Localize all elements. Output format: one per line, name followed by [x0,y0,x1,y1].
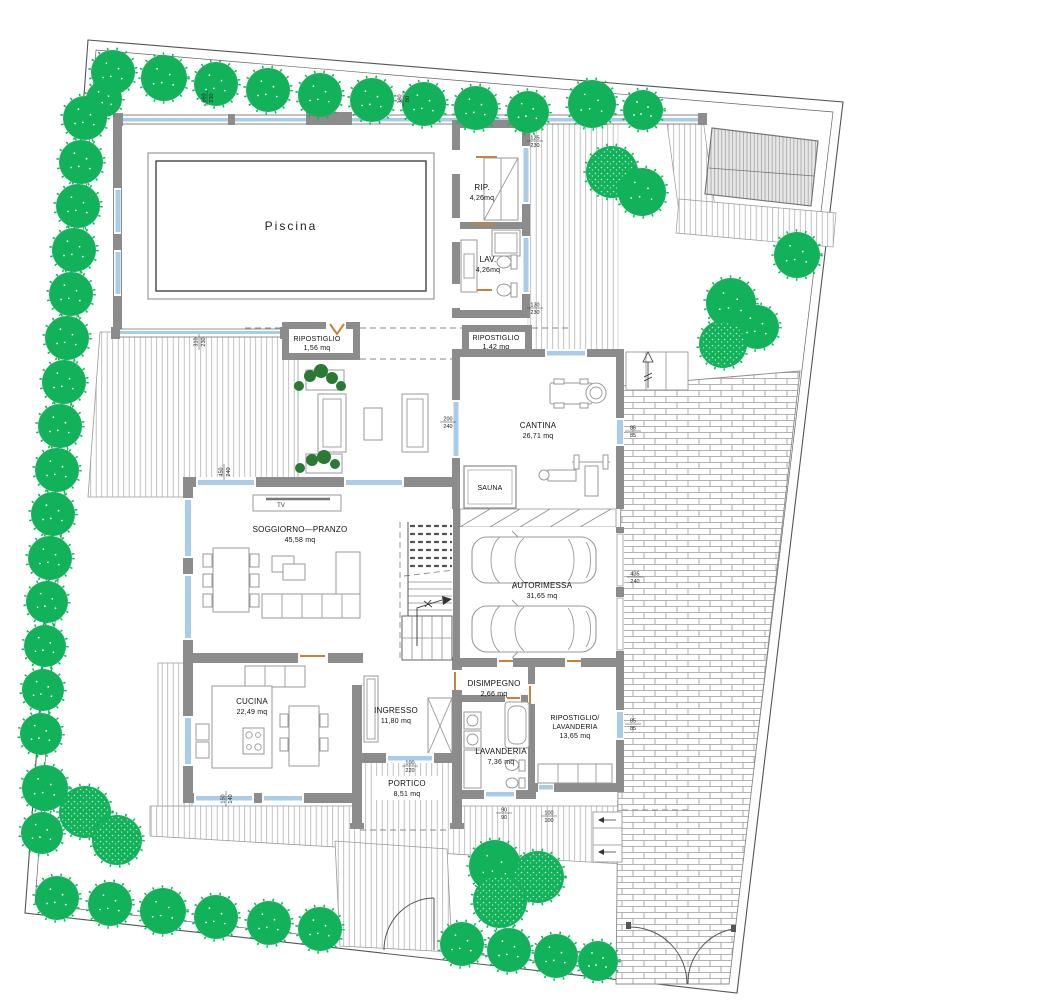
floor-plan-page: Piscina RIP. 4,26mq LAV. 4,26mq [0,0,1044,1007]
area-lav: 4,26mq [476,267,501,274]
tree-solid [245,67,292,114]
label-soggiorno: SOGGIORNO—PRANZO [253,525,348,534]
garage: AUTORIMESSA 31,65 mq [452,509,624,667]
tree-solid [51,227,98,274]
svg-text:80: 80 [405,96,411,102]
pergola [705,128,818,206]
tree-solid [773,231,822,280]
svg-text:240: 240 [630,579,639,585]
area-lavanderia: 7,36 mq [488,759,515,766]
tree-solid [193,894,240,941]
tree-solid [19,712,64,757]
svg-text:90: 90 [501,815,507,821]
svg-text:230: 230 [209,93,215,102]
svg-text:380: 380 [398,94,404,103]
floor-plan-drawing: Piscina RIP. 4,26mq LAV. 4,26mq [0,0,1044,1007]
svg-text:240: 240 [443,424,452,430]
label-autorimessa: AUTORIMESSA [512,581,573,590]
label-sauna: SAUNA [477,485,502,492]
deck-patio [88,332,298,497]
label2-ripostiglio-lavanderia: LAVANDERIA [552,724,597,731]
storage-counter [538,764,612,783]
area-disimpegno: 2,66 mq [481,691,508,698]
area-ingresso: 11,80 mq [381,718,411,725]
tree-solid [140,54,189,103]
exterior-steps-south [593,812,622,862]
kitchen: CUCINA 22,49 mq [183,653,369,803]
label-ingresso: INGRESSO [374,706,418,715]
area-ripostiglio-lavanderia: 13,65 mq [560,733,591,740]
car [472,600,596,658]
sauna: SAUNA [464,466,516,508]
svg-text:85: 85 [630,426,636,432]
svg-text:200: 200 [443,417,452,423]
tree-solid [486,927,533,974]
label-rip: RIP. [474,183,489,192]
tree-solid [20,811,65,856]
service-rooms: DISIMPEGNO 2,66 mq LAVANDERIA 7,36 mq RI… [452,667,624,799]
svg-text:230: 230 [201,337,207,346]
ramp-grate [460,509,616,527]
svg-text:100: 100 [544,818,553,824]
area-cucina: 22,49 mq [237,709,268,716]
tree-solid [30,491,77,538]
patio-north-fence [111,327,288,339]
svg-text:100: 100 [405,761,414,767]
area-portico: 8,51 mq [394,791,421,798]
tree-solid [34,447,81,494]
area-rip: 4,26mq [470,195,495,202]
label-tv: TV [277,503,285,509]
exterior-steps-east [626,352,688,390]
label-ripostiglio-lavanderia: RIPOSTIGLIO/ [550,715,599,722]
svg-text:240: 240 [226,467,232,476]
svg-text:100: 100 [544,811,553,817]
svg-text:230: 230 [530,143,539,149]
label-lavanderia: LAVANDERIA [475,747,527,756]
tree-solid [25,580,70,625]
area-ripostiglio-1: 1,56 mq [304,345,331,352]
ripostiglio-1: RIPOSTIGLIO 1,56 mq [282,322,360,360]
svg-text:125: 125 [530,136,539,142]
svg-text:660: 660 [202,93,208,102]
tree-solid [48,271,95,318]
area-autorimessa: 31,65 mq [527,593,558,600]
tree-solid [41,359,88,406]
tree-solid [533,933,580,980]
pool-house: RIP. 4,26mq LAV. 4,26mq [452,120,530,318]
area-cantina: 26,71 mq [523,433,554,440]
label-lav: LAV. [480,255,497,264]
svg-text:130: 130 [530,303,539,309]
tree-solid [58,139,105,186]
brick-driveway [616,371,800,984]
svg-text:90: 90 [501,808,507,814]
cantina: SAUNA CANTINA 26,71 mq [452,349,624,509]
label-disimpegno: DISIMPEGNO [467,679,520,688]
dining-table [203,548,259,612]
tree-solid [139,887,188,936]
tree-solid [23,624,68,669]
terrace-lounge [294,364,428,473]
label-ripostiglio-1: RIPOSTIGLIO [294,336,341,343]
tree-solid [55,183,102,230]
tree-solid [44,315,91,362]
tv-cabinet: TV [253,495,341,511]
label-piscina: Piscina [265,219,318,233]
svg-text:85: 85 [630,433,636,439]
svg-text:435: 435 [630,572,639,578]
label-ripostiglio-2: RIPOSTIGLIO [473,335,520,342]
entrance: INGRESSO 11,80 mq [352,663,462,763]
area-soggiorno: 45,58 mq [285,537,316,544]
tree-solid [37,403,84,450]
tree-solid [246,900,293,947]
tree-solid [27,535,74,582]
pool-area-west-wall [113,126,122,332]
pool: Piscina [148,153,434,299]
label-cucina: CUCINA [236,697,268,706]
tree-solid [297,906,344,953]
svg-text:85: 85 [630,719,636,725]
svg-text:85: 85 [630,726,636,732]
svg-text:230: 230 [530,310,539,316]
svg-text:150: 150 [221,794,227,803]
tree-solid [297,72,344,119]
tree-solid [193,61,240,108]
svg-text:450: 450 [219,467,225,476]
label-portico: PORTICO [388,779,426,788]
label-cantina: CANTINA [520,421,557,430]
tree-solid [21,668,66,713]
svg-text:310: 310 [194,337,200,346]
svg-text:220: 220 [405,768,414,774]
svg-text:140: 140 [228,794,234,803]
